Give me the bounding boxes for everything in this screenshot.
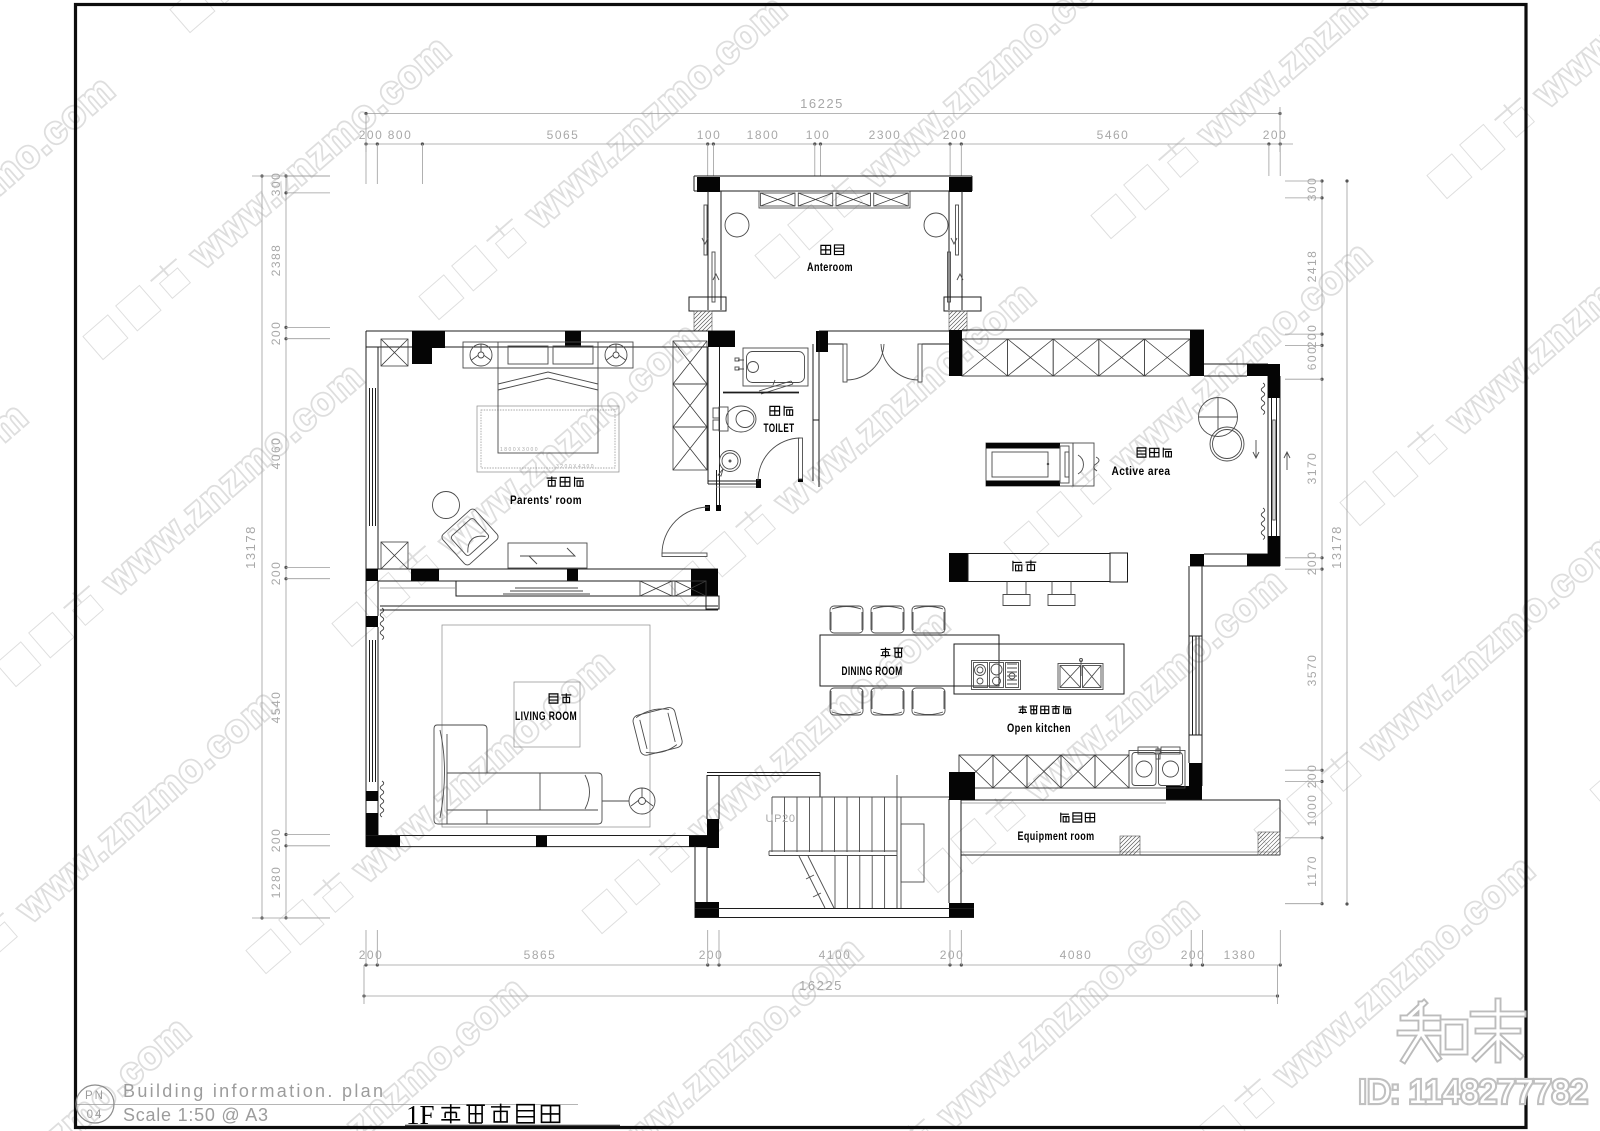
svg-text:200: 200	[359, 128, 384, 142]
svg-text:Building information. plan: Building information. plan	[123, 1081, 385, 1101]
svg-text:200: 200	[359, 948, 384, 962]
svg-text:200: 200	[269, 828, 283, 853]
svg-text:200: 200	[1181, 948, 1206, 962]
svg-text:5865: 5865	[524, 948, 557, 962]
svg-text:4060: 4060	[269, 437, 283, 470]
svg-text:5065: 5065	[547, 128, 580, 142]
svg-text:Open kitchen: Open kitchen	[1007, 723, 1071, 735]
svg-text:1280: 1280	[269, 866, 283, 899]
svg-text:1380: 1380	[1224, 948, 1257, 962]
svg-text:2300: 2300	[869, 128, 902, 142]
svg-text:200: 200	[269, 321, 283, 346]
svg-text:200: 200	[1305, 324, 1319, 349]
svg-text:PN: PN	[85, 1090, 105, 1102]
svg-text:200: 200	[940, 948, 965, 962]
svg-text:5460: 5460	[1097, 128, 1130, 142]
svg-text:800: 800	[388, 128, 413, 142]
svg-text:TOILET: TOILET	[764, 423, 795, 435]
svg-text:1800X3000: 1800X3000	[500, 447, 539, 453]
svg-text:1170: 1170	[1305, 855, 1319, 887]
svg-text:3570: 3570	[1305, 654, 1319, 687]
svg-text:100: 100	[697, 128, 722, 142]
svg-text:Scale 1:50 @ A3: Scale 1:50 @ A3	[123, 1105, 270, 1125]
svg-text:200: 200	[269, 561, 283, 586]
svg-text:4540: 4540	[269, 691, 283, 724]
svg-text:Anteroom: Anteroom	[807, 262, 853, 274]
svg-text:4080: 4080	[1060, 948, 1093, 962]
svg-text:200: 200	[1305, 764, 1319, 789]
svg-text:Equipment room: Equipment room	[1018, 831, 1095, 843]
svg-text:100: 100	[806, 128, 831, 142]
svg-text:3200X4300: 3200X4300	[556, 464, 595, 470]
svg-text:ID: 1148277782: ID: 1148277782	[1358, 1073, 1590, 1110]
svg-text:200: 200	[699, 948, 724, 962]
svg-text:13178: 13178	[1329, 525, 1344, 569]
svg-text:200: 200	[1305, 551, 1319, 576]
svg-text:04: 04	[87, 1109, 104, 1121]
svg-text:2388: 2388	[269, 244, 283, 277]
svg-text:200: 200	[1263, 128, 1288, 142]
svg-text:2418: 2418	[1305, 250, 1319, 283]
svg-text:4100: 4100	[819, 948, 852, 962]
svg-text:UP20: UP20	[766, 813, 797, 825]
svg-text:13178: 13178	[243, 525, 258, 569]
svg-text:DINING ROOM: DINING ROOM	[842, 666, 903, 678]
svg-text:Active area: Active area	[1112, 466, 1171, 478]
svg-text:16225: 16225	[800, 96, 844, 111]
svg-text:300: 300	[269, 172, 283, 197]
svg-text:300: 300	[1305, 177, 1319, 202]
svg-text:1800: 1800	[747, 128, 780, 142]
svg-text:LIVING ROOM: LIVING ROOM	[515, 711, 577, 723]
svg-text:16225: 16225	[799, 978, 843, 993]
svg-text:1000: 1000	[1305, 794, 1319, 827]
svg-text:600: 600	[1305, 346, 1319, 371]
svg-text:3170: 3170	[1305, 452, 1319, 485]
svg-text:200: 200	[943, 128, 968, 142]
svg-text:Parents' room: Parents' room	[510, 495, 582, 507]
